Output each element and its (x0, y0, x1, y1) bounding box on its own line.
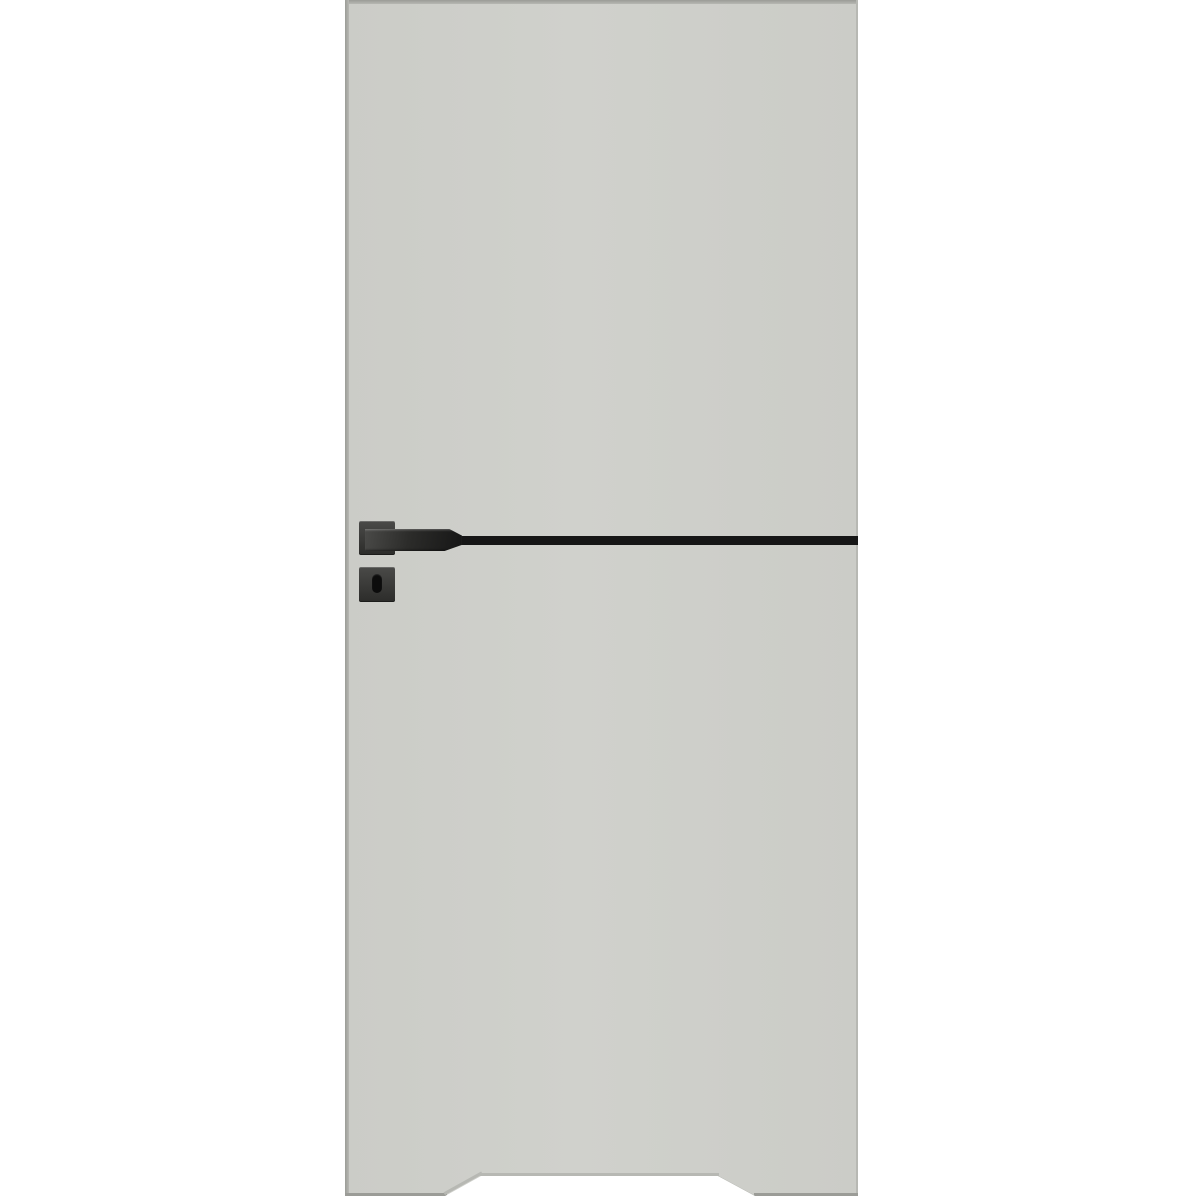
door-inlay-stripe (430, 536, 858, 545)
undercut-notch-left-diagonal (444, 1172, 483, 1195)
door-leaf (345, 0, 858, 1196)
undercut-notch-top-edge (480, 1173, 719, 1176)
product-image-canvas (0, 0, 1200, 1200)
door-bottom-edge-left (345, 1193, 447, 1196)
undercut-notch-right-diagonal (716, 1175, 755, 1198)
door-right-edge (856, 0, 858, 1196)
door-left-edge (345, 0, 349, 1196)
door-handle-lever (365, 529, 462, 551)
keyhole-escutcheon (359, 567, 395, 602)
keyhole-slot (372, 574, 382, 593)
door-top-edge (345, 0, 858, 4)
door-bottom-edge-right (754, 1193, 858, 1196)
